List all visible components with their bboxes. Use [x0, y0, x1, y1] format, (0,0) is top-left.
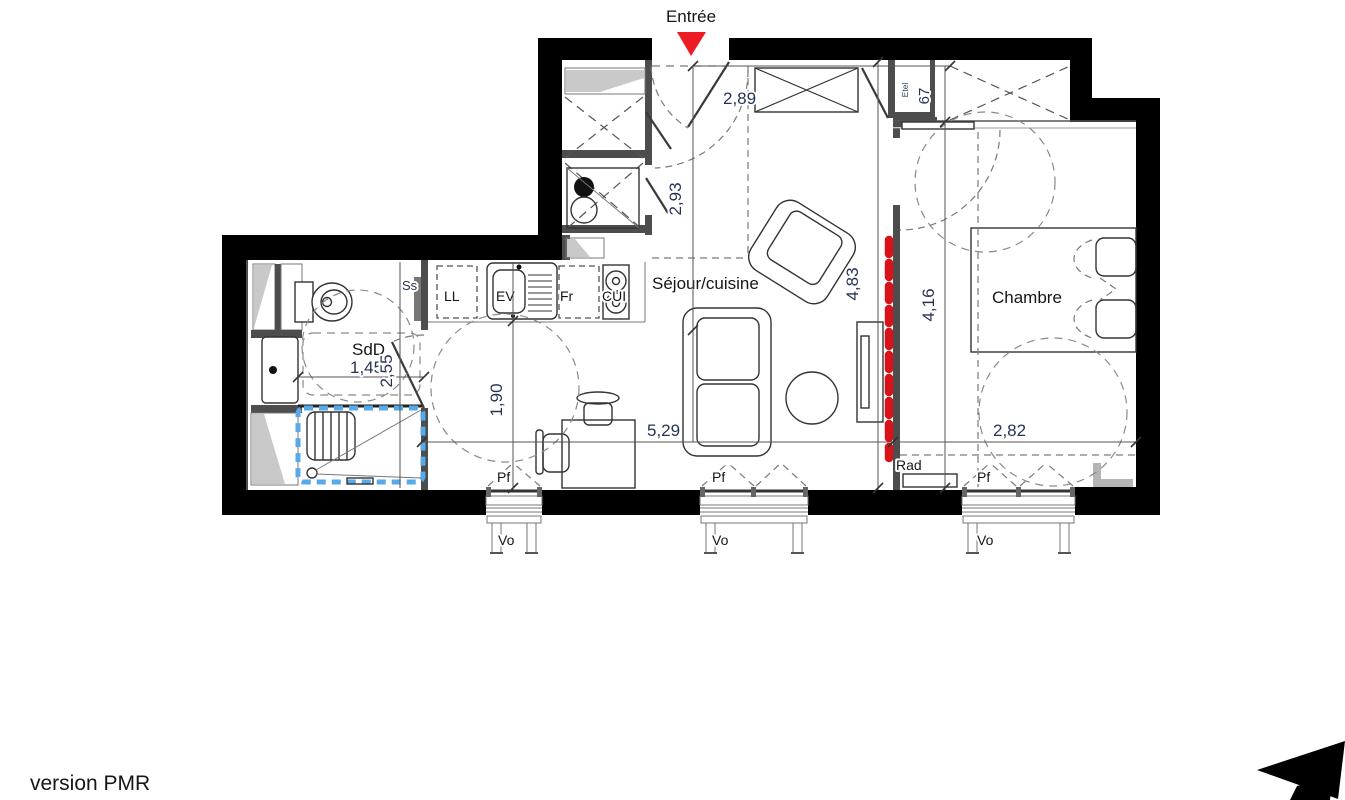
entry-closet-technical	[565, 163, 668, 230]
dim-kitchen-clearance: 1,90	[487, 383, 506, 416]
dim-bathroom-length: 2,55	[377, 354, 396, 387]
faucet-icon	[517, 265, 522, 270]
fridge-label: Fr	[560, 288, 574, 304]
window-left: Pf Vo	[486, 463, 542, 553]
corner-detail-inner	[1101, 463, 1133, 479]
bedroom-sliding-door	[902, 122, 974, 129]
shower-drain-icon	[307, 468, 317, 478]
window-right: Pf Vo	[962, 463, 1075, 553]
radiator-label: Rad	[896, 457, 922, 473]
sideboard	[857, 322, 883, 422]
shutter-label: Vo	[498, 532, 515, 548]
round-table	[786, 372, 838, 424]
shower	[298, 406, 423, 484]
desk-chair	[536, 430, 569, 474]
living-room: Séjour/cuisine	[536, 66, 889, 488]
entry-closet-upper	[565, 97, 671, 158]
dim-entry-width: 2,89	[723, 89, 756, 108]
shutter-label: Vo	[712, 532, 729, 548]
desk	[562, 392, 635, 488]
wall-niches	[251, 68, 645, 485]
dim-bedroom-width: 2,82	[993, 421, 1026, 440]
version-label: version PMR	[30, 772, 150, 795]
drain-icon	[269, 366, 277, 374]
shutter-label: Vo	[977, 532, 994, 548]
kitchen: LL EV Fr CUI	[428, 262, 645, 322]
washbasin	[262, 337, 298, 403]
bedroom-closet-dashed	[950, 66, 1070, 120]
entrance-marker: Entrée	[666, 7, 716, 56]
towel-dryer-label: Ss	[402, 278, 418, 293]
french-window-label: Pf	[977, 469, 990, 485]
sofa	[683, 308, 771, 456]
electrical-panel-label: Etel	[900, 83, 910, 98]
dim-bedroom-length: 4,16	[919, 288, 938, 321]
closets	[565, 66, 1070, 230]
pillow	[1096, 300, 1136, 338]
water-heater-icon	[571, 197, 597, 223]
pillow	[1096, 238, 1136, 276]
bedroom-label: Chambre	[992, 288, 1062, 307]
floor-plan-page: LL EV Fr CUI	[0, 0, 1345, 800]
french-window-label: Pf	[497, 469, 510, 485]
logo	[1257, 741, 1345, 800]
hall-closet-crossed	[755, 68, 888, 118]
bedroom-door-swing	[900, 130, 1000, 230]
entrance-label: Entrée	[666, 7, 716, 26]
sink-label: EV	[496, 288, 515, 304]
french-window-label: Pf	[712, 469, 725, 485]
entrance-arrow-icon	[677, 32, 706, 56]
dim-living-width: 5,29	[647, 421, 680, 440]
shower-seat	[307, 412, 355, 460]
dim-living-length: 4,83	[843, 267, 862, 300]
washer-label: LL	[444, 288, 460, 304]
dim-entry-depth: 2,93	[666, 182, 685, 215]
floor-plan-drawing: LL EV Fr CUI	[0, 0, 1345, 800]
bathroom-door-leaf	[392, 342, 424, 408]
living-kitchen-label: Séjour/cuisine	[652, 274, 759, 293]
vmc-fan-icon	[574, 177, 594, 197]
cooktop-label: CUI	[602, 288, 626, 304]
dim-closet-depth: 67	[916, 88, 933, 105]
window-center: Pf Vo	[700, 463, 808, 553]
